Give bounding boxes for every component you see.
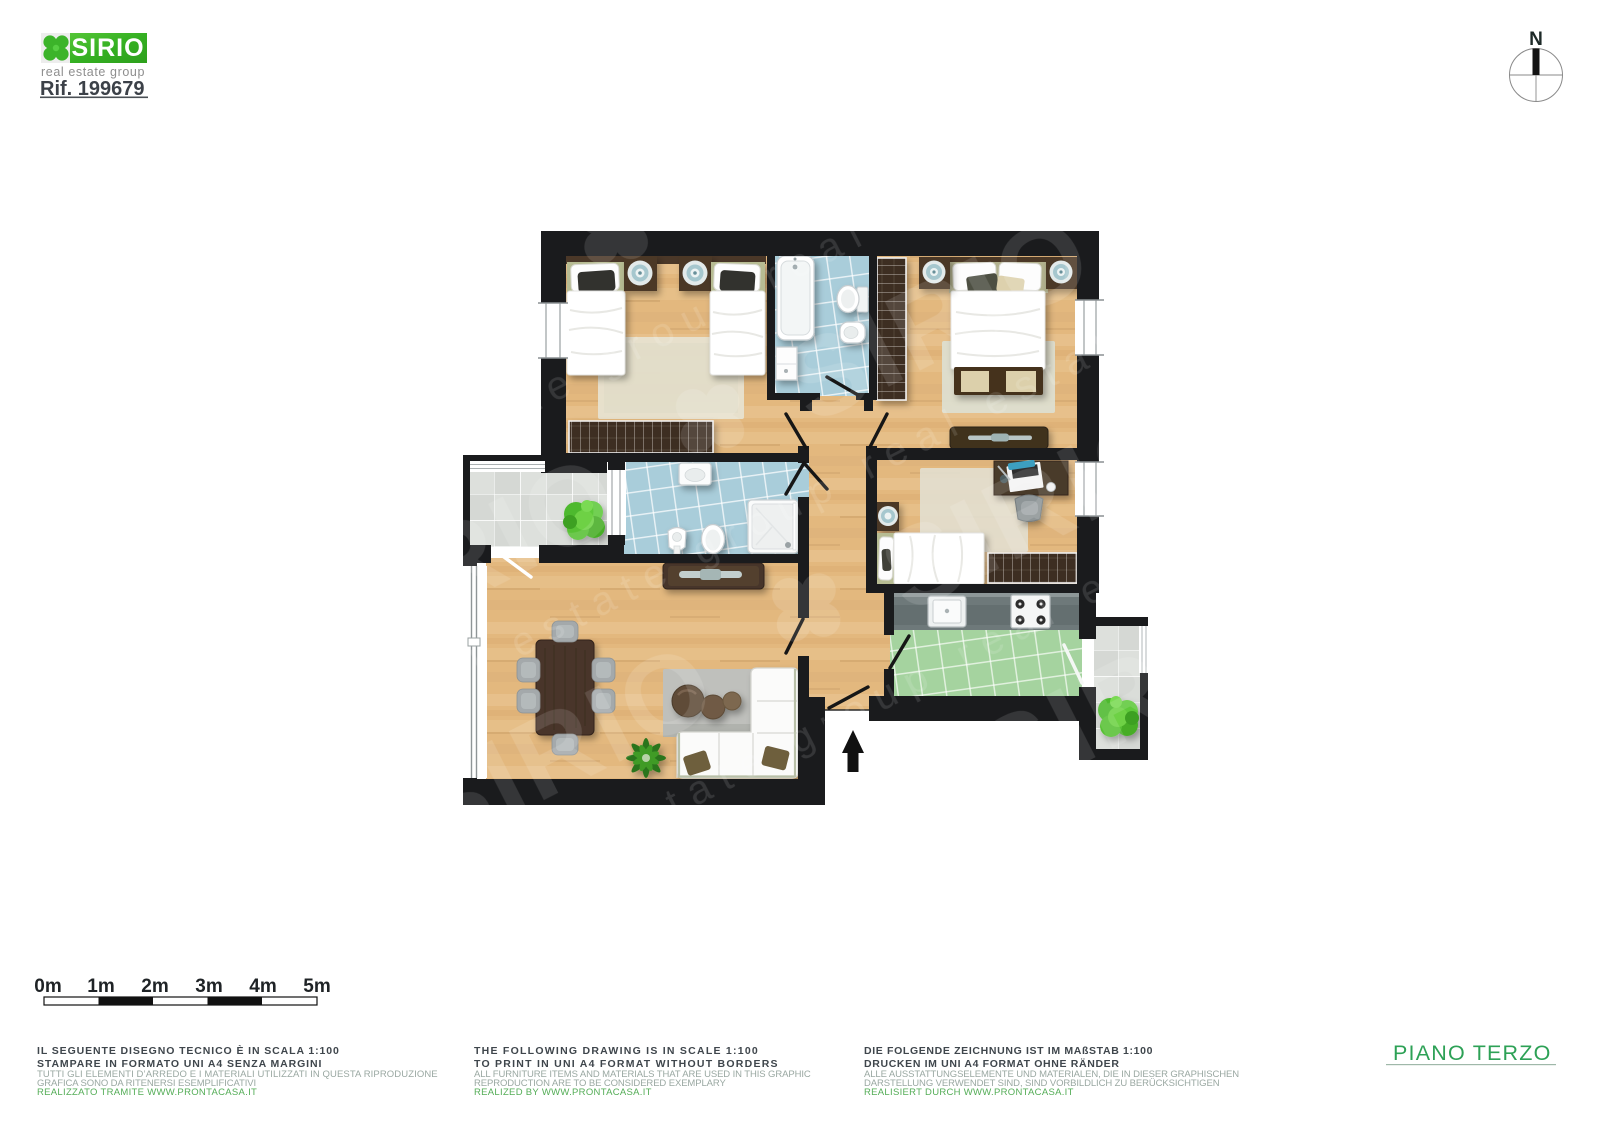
svg-text:REALISIERT DURCH WWW.PRONTACAS: REALISIERT DURCH WWW.PRONTACASA.IT <box>864 1087 1074 1098</box>
svg-text:SIRIO: SIRIO <box>71 34 144 62</box>
svg-text:PIANO TERZO: PIANO TERZO <box>1393 1041 1552 1065</box>
svg-text:REALIZZATO TRAMITE WWW.PRONTAC: REALIZZATO TRAMITE WWW.PRONTACASA.IT <box>37 1087 257 1098</box>
svg-text:IL SEGUENTE DISEGNO TECNICO È: IL SEGUENTE DISEGNO TECNICO È IN SCALA 1… <box>37 1044 340 1057</box>
svg-text:4m: 4m <box>249 976 276 997</box>
svg-text:DIE FOLGENDE ZEICHNUNG IST IM: DIE FOLGENDE ZEICHNUNG IST IM MAßSTAB 1:… <box>864 1045 1153 1057</box>
svg-text:THE FOLLOWING DRAWING IS IN SC: THE FOLLOWING DRAWING IS IN SCALE 1:100 <box>474 1045 759 1057</box>
svg-text:3m: 3m <box>195 976 222 997</box>
svg-text:2m: 2m <box>141 976 168 997</box>
svg-text:N: N <box>1529 29 1543 50</box>
svg-text:5m: 5m <box>303 976 330 997</box>
svg-text:0m: 0m <box>34 976 61 997</box>
svg-text:REALIZED BY WWW.PRONTACASA.IT: REALIZED BY WWW.PRONTACASA.IT <box>474 1087 652 1098</box>
svg-text:real estate group: real estate group <box>41 65 145 79</box>
svg-text:1m: 1m <box>87 976 114 997</box>
